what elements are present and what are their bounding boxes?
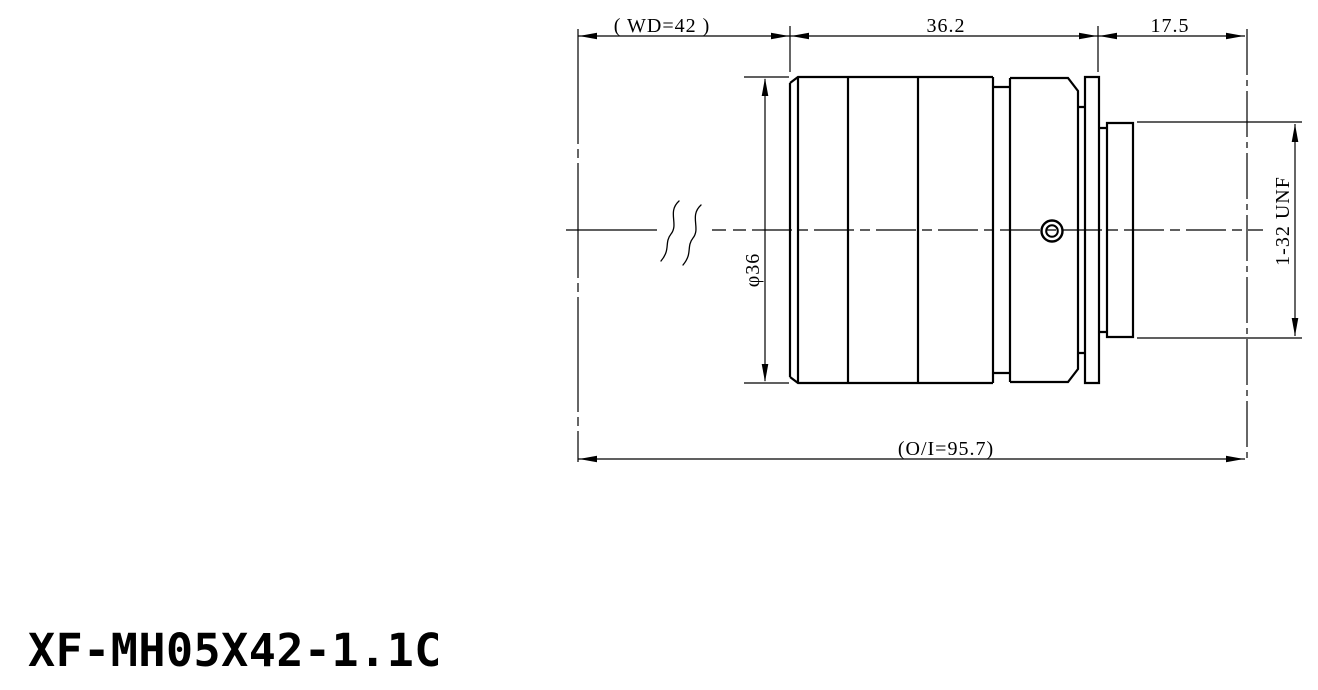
dim-diameter-label: φ36 [742, 253, 764, 288]
dimension-labels: ( WD=42 ) 36.2 17.5 (O/I=95.7) φ36 1-32 … [614, 15, 1294, 460]
drawing-canvas: ( WD=42 ) 36.2 17.5 (O/I=95.7) φ36 1-32 … [0, 0, 1318, 690]
set-screw-detail [1042, 221, 1063, 242]
dimension-lines [578, 26, 1302, 459]
construction-lines [566, 29, 1263, 462]
lens-technical-drawing: ( WD=42 ) 36.2 17.5 (O/I=95.7) φ36 1-32 … [0, 0, 1318, 690]
dim-body-length-label: 36.2 [927, 15, 966, 37]
dim-working-distance-label: ( WD=42 ) [614, 15, 711, 37]
dim-thread-label: 1-32 UNF [1272, 176, 1294, 266]
dim-flange-focal-label: 17.5 [1151, 15, 1190, 37]
break-symbol [661, 201, 701, 265]
part-number-label: XF-MH05X42-1.1C [28, 624, 442, 677]
dim-overall-length-label: (O/I=95.7) [898, 438, 994, 460]
dimension-arrowheads [579, 33, 1298, 463]
